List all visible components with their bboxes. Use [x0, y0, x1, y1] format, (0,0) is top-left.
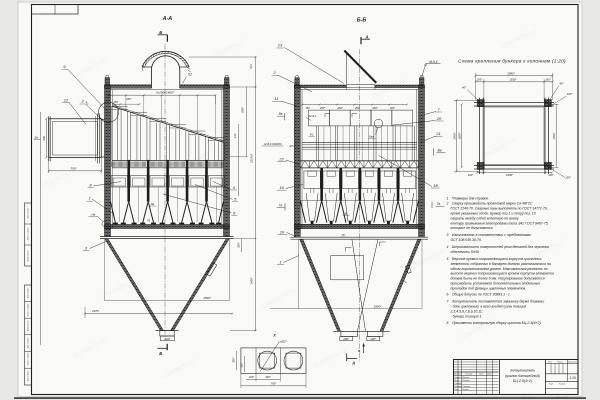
- svg-text:Подп.: Подп.: [479, 373, 484, 376]
- svg-text:Пров.: Пров.: [454, 380, 459, 382]
- svg-text:7б: 7б: [147, 219, 151, 223]
- svg-text:600: 600: [42, 136, 46, 141]
- svg-text:158: 158: [113, 100, 118, 104]
- svg-text:Сидоров: Сидоров: [463, 385, 471, 388]
- svg-text:1650*: 1650*: [457, 132, 461, 140]
- svg-text:Гв: Гв: [279, 204, 283, 208]
- svg-text:1890*: 1890*: [374, 304, 383, 308]
- svg-text:кроме указанных особо. Бункер: кроме указанных особо. Бункер поз.1 и оп…: [451, 211, 536, 215]
- svg-text:Инв.N дубл: Инв.N дубл: [27, 370, 30, 381]
- svg-text:22: 22: [278, 157, 284, 162]
- svg-text:контуру примыкания электродами: контуру примыкания электродами типа Э42 …: [451, 221, 549, 225]
- svg-text:Х2: Х2: [187, 73, 192, 77]
- svg-text:Утв.: Утв.: [454, 389, 459, 391]
- svg-text:А: А: [364, 34, 368, 39]
- svg-text:Подп. и дата: Подп. и дата: [27, 352, 30, 365]
- svg-text:Вв: Вв: [279, 112, 283, 116]
- svg-text:280*: 280*: [319, 106, 326, 110]
- svg-text:7б: 7б: [341, 233, 345, 237]
- svg-text:280*: 280*: [125, 97, 132, 101]
- svg-text:Лист: Лист: [456, 374, 462, 376]
- svg-text:(циклон батарейный): (циклон батарейный): [505, 374, 540, 378]
- svg-text:Ив: Ив: [91, 212, 95, 216]
- svg-text:*Размеры для справок.: *Размеры для справок.: [452, 197, 489, 201]
- svg-text:2080*: 2080*: [506, 71, 515, 75]
- svg-text:6: 6: [447, 293, 449, 297]
- svg-text:12: 12: [64, 98, 69, 103]
- svg-text:одном горизонтальном уровне. М: одном горизонтальном уровне. Максимальна…: [451, 267, 548, 271]
- svg-text:Разраб.: Разраб.: [454, 377, 461, 379]
- svg-text:Листов: Листов: [558, 384, 566, 386]
- svg-text:280*: 280*: [371, 106, 378, 110]
- svg-text:Формат А1: Формат А1: [557, 396, 568, 399]
- svg-text:Инв.N дубл: Инв.N дубл: [27, 287, 30, 298]
- svg-text:3: 3: [447, 233, 449, 237]
- svg-text:Общие допуски по ГОСТ 30893.1: Общие допуски по ГОСТ 30893.1 - с.: [452, 293, 511, 297]
- svg-text:18: 18: [433, 183, 438, 188]
- svg-text:5: 5: [447, 257, 449, 261]
- svg-text:Инв.N подл: Инв.N подл: [27, 337, 30, 348]
- svg-text:ГОСТ 2246-70. Сварные швы выпо: ГОСТ 2246-70. Сварные швы выполнять по Г…: [451, 206, 548, 210]
- svg-text:обеспечить Rz50.: обеспечить Rz50.: [451, 250, 480, 254]
- svg-text:Подп. и дата: Подп. и дата: [27, 227, 30, 240]
- svg-text:М-0,4: М-0,4: [429, 60, 437, 64]
- svg-text:элементов, собранных в батарею: элементов, собранных в батарею должны ра…: [451, 262, 551, 266]
- svg-text:12-Б.1: 12-Б.1: [309, 114, 317, 118]
- svg-text:280*: 280*: [354, 106, 361, 110]
- svg-text:должна быть не более 6 мм. Рег: должна быть не более 6 мм. Регулирование…: [451, 277, 545, 281]
- svg-text:Гв: Гв: [437, 202, 441, 206]
- svg-text:Взам.инв.N: Взам.инв.N: [28, 320, 30, 331]
- svg-text:- бункер, позиция 1.: - бункер, позиция 1.: [451, 314, 483, 318]
- svg-text:Б-Б: Б-Б: [357, 18, 367, 24]
- svg-text:10: 10: [280, 230, 285, 235]
- svg-text:Взам.инв.N: Взам.инв.N: [28, 250, 30, 261]
- svg-text:А: А: [351, 361, 355, 366]
- svg-text:Б: Б: [159, 351, 162, 356]
- svg-text:200*: 200*: [342, 337, 350, 341]
- svg-text:- блок циклонный, в него вход: - блок циклонный, в него входят узлы поз…: [451, 304, 527, 308]
- svg-text:производить установкой дополни: производить установкой дополнительных от…: [451, 282, 541, 286]
- svg-text:1890*: 1890*: [506, 173, 514, 177]
- svg-text:Верхние кромки соприкасающихся: Верхние кромки соприкасающихся корпусов …: [452, 257, 542, 261]
- svg-text:Копировал: Копировал: [522, 397, 533, 399]
- svg-text:Дв: Дв: [150, 202, 155, 206]
- svg-text:2080*: 2080*: [452, 132, 456, 141]
- svg-text:Бв: Бв: [35, 136, 39, 140]
- svg-text:Золоуловитель: Золоуловитель: [510, 369, 536, 373]
- svg-text:280*: 280*: [389, 106, 396, 110]
- svg-text:Вв: Вв: [438, 149, 442, 153]
- svg-text:200*: 200*: [369, 337, 377, 341]
- svg-text:280*: 280*: [336, 106, 343, 110]
- svg-text:Сварку производить проволокой: Сварку производить проволокой марки Св-0…: [452, 201, 533, 205]
- svg-text:Масштаб: Масштаб: [568, 362, 577, 364]
- svg-text:2,3,4,5,6,7,8,9,10,11;: 2,3,4,5,6,7,8,9,10,11;: [450, 309, 483, 313]
- svg-text:сварить между собой вплотную п: сварить между собой вплотную по всему: [451, 216, 519, 220]
- svg-text:2: 2: [446, 201, 449, 205]
- svg-text:600*: 600*: [241, 106, 245, 112]
- svg-text:Б: Б: [159, 30, 162, 35]
- svg-text:100*: 100*: [567, 92, 573, 96]
- svg-text:Золоуловитель поставляется зак: Золоуловитель поставляется заказчику дву…: [452, 299, 544, 303]
- svg-text:21: 21: [435, 131, 440, 136]
- svg-text:которые не допускаются.: которые не допускаются.: [451, 226, 494, 230]
- svg-text:Дв: Дв: [343, 212, 348, 216]
- svg-text:1890*: 1890*: [203, 296, 212, 300]
- svg-text:Инв.N подл: Инв.N подл: [27, 207, 30, 218]
- svg-text:Т.контр.: Т.контр.: [454, 383, 462, 385]
- svg-text:158: 158: [305, 106, 310, 110]
- svg-text:2357±8: 2357±8: [249, 154, 253, 164]
- svg-text:высоте верхних соприкасающихся: высоте верхних соприкасающихся кромок ко…: [451, 272, 554, 276]
- svg-text:8: 8: [447, 321, 449, 325]
- svg-text:Иванов: Иванов: [463, 377, 469, 379]
- svg-text:N докум.: N докум.: [465, 373, 473, 376]
- svg-text:Дата: Дата: [486, 374, 492, 376]
- svg-text:11: 11: [274, 96, 278, 101]
- svg-text:20: 20: [436, 116, 442, 121]
- svg-text:Лит.: Лит.: [547, 362, 553, 364]
- svg-text:Изготовлять в соответствии с т: Изготовлять в соответствии с требованиям…: [452, 233, 531, 237]
- svg-text:Лист: Лист: [548, 384, 554, 386]
- svg-text:Ж1: Ж1: [309, 133, 314, 137]
- svg-text:5х280=1400*: 5х280=1400*: [156, 91, 175, 95]
- svg-text:243: 243: [233, 133, 237, 139]
- svg-text:200*: 200*: [164, 337, 172, 341]
- svg-text:12-Б.3-190/200: 12-Б.3-190/200: [264, 142, 282, 146]
- svg-text:514: 514: [249, 64, 253, 69]
- svg-text:прокладок под фланцы циклонных: прокладок под фланцы циклонных элементов…: [451, 287, 527, 291]
- svg-text:1:10: 1:10: [569, 376, 576, 380]
- svg-text:Схема крепления бункера к коло: Схема крепления бункера к колоннам (1:20…: [458, 59, 566, 65]
- svg-text:2675: 2675: [91, 309, 99, 313]
- svg-text:Подп. и дата: Подп. и дата: [27, 303, 30, 316]
- svg-text:Кав: Кав: [369, 135, 374, 139]
- svg-text:4: 4: [447, 245, 449, 249]
- svg-text:13: 13: [278, 43, 283, 48]
- svg-text:БЦ-2-6(4+2): БЦ-2-6(4+2): [513, 379, 532, 383]
- svg-text:ОСТ 108.030.30-79.: ОСТ 108.030.30-79.: [451, 238, 482, 242]
- svg-text:1400*: 1400*: [249, 277, 253, 285]
- svg-text:1630*: 1630*: [510, 78, 518, 82]
- svg-text:Х: Х: [272, 334, 276, 338]
- svg-text:Н.контр.: Н.контр.: [454, 386, 462, 388]
- svg-text:1: 1: [447, 197, 449, 201]
- svg-text:А-А: А-А: [162, 16, 173, 22]
- svg-text:⌀202*: ⌀202*: [279, 340, 287, 344]
- svg-text:1850*: 1850*: [552, 132, 556, 140]
- svg-text:Петров: Петров: [463, 380, 470, 382]
- svg-text:Шероховатость поверхностей рез: Шероховатость поверхностей реза деталей …: [452, 245, 549, 249]
- svg-text:Масса: Масса: [557, 362, 562, 364]
- svg-text:19: 19: [279, 185, 284, 190]
- svg-text:1: 1: [279, 260, 281, 265]
- svg-text:Козлов: Козлов: [463, 389, 469, 391]
